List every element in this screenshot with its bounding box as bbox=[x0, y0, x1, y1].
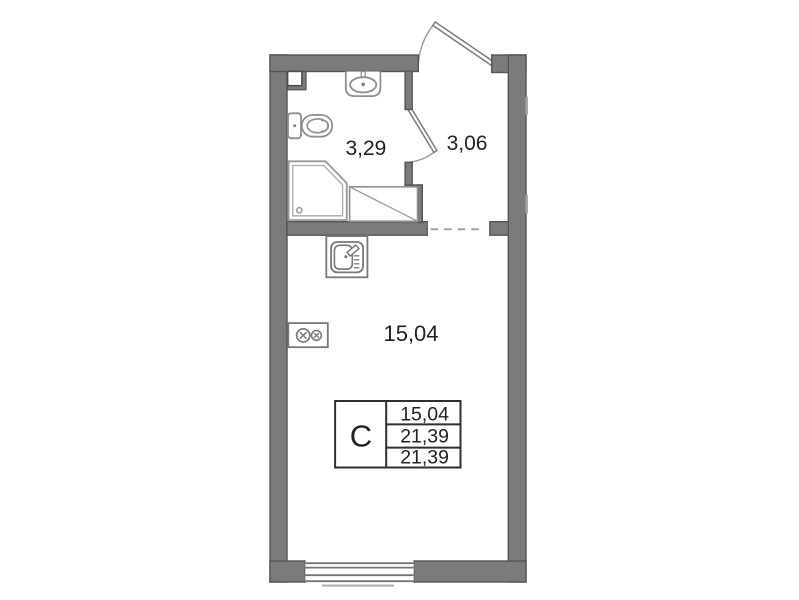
svg-text:С: С bbox=[350, 419, 372, 454]
svg-text:15,04: 15,04 bbox=[400, 404, 449, 426]
svg-text:15,04: 15,04 bbox=[383, 321, 438, 346]
svg-text:3,06: 3,06 bbox=[447, 132, 488, 155]
svg-text:21,39: 21,39 bbox=[400, 447, 449, 469]
svg-text:3,29: 3,29 bbox=[345, 137, 386, 160]
svg-text:21,39: 21,39 bbox=[400, 426, 449, 448]
